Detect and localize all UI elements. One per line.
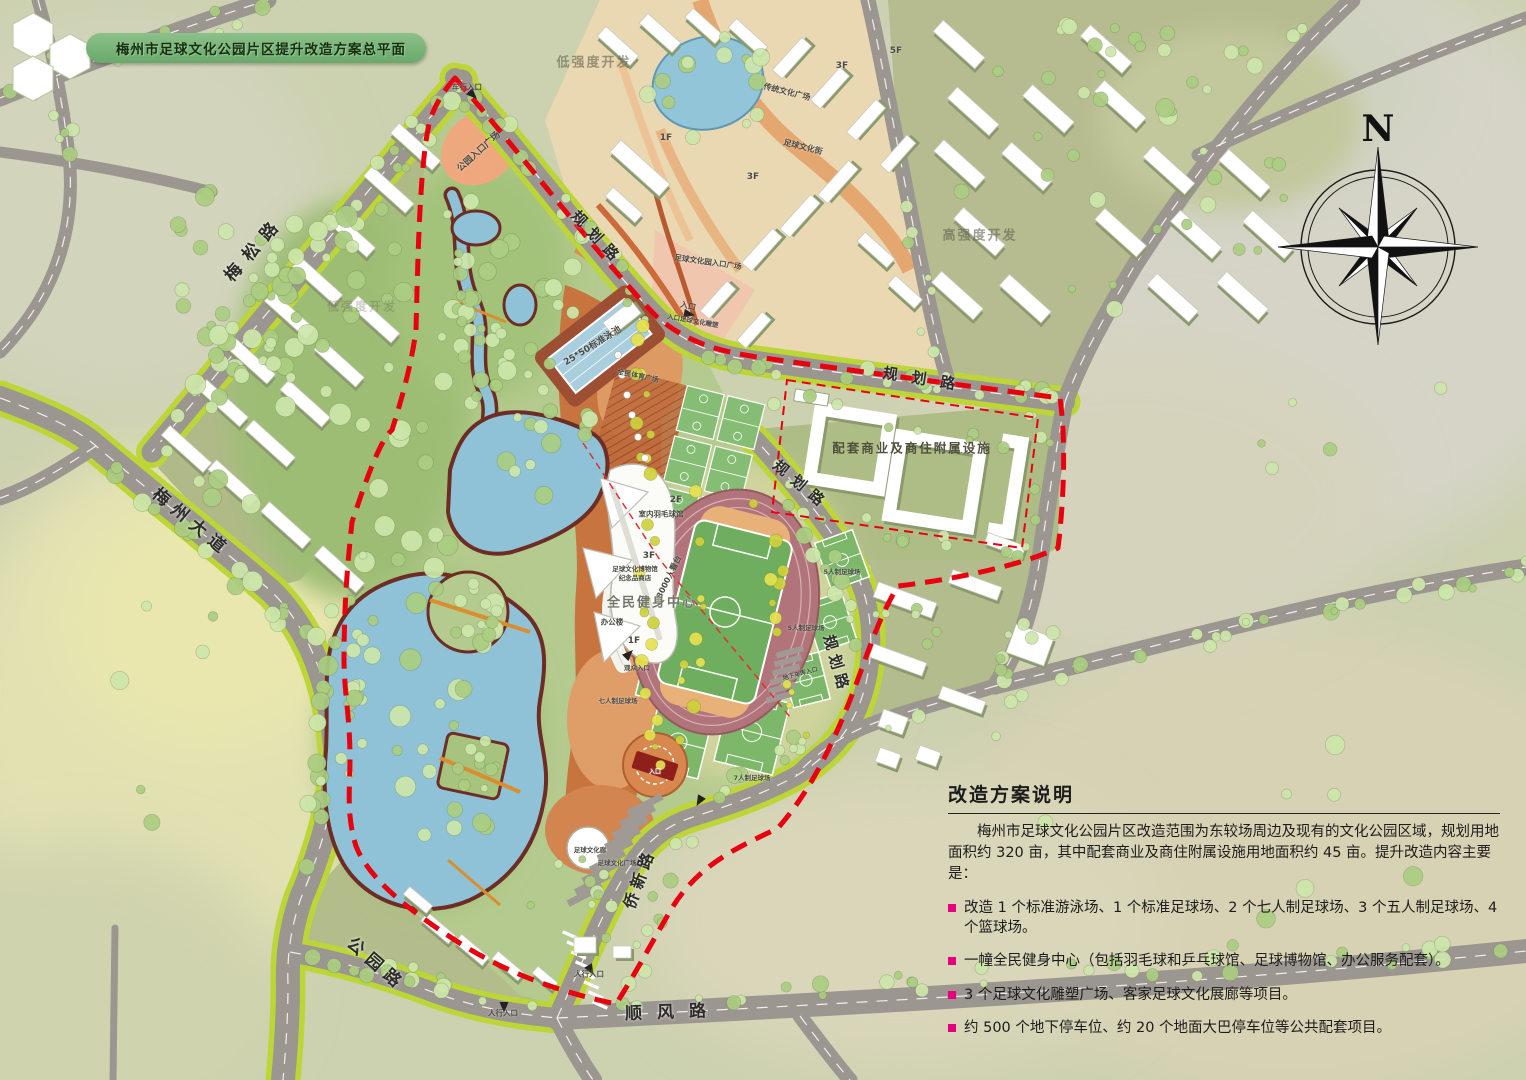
tree — [1078, 87, 1090, 99]
building — [613, 946, 634, 961]
tree — [400, 649, 422, 671]
tree — [749, 499, 758, 508]
tree — [322, 253, 331, 262]
tree — [434, 372, 452, 390]
tree — [1254, 246, 1262, 254]
site-label-27: 3F — [747, 172, 759, 182]
tree — [286, 373, 296, 383]
tree — [1203, 85, 1212, 94]
tree — [393, 163, 403, 173]
tree — [906, 227, 917, 238]
tree — [318, 655, 338, 675]
tree — [309, 221, 328, 240]
tree — [203, 488, 222, 507]
tree — [995, 664, 1007, 676]
site-label-7: 室内羽毛球馆 — [639, 509, 684, 520]
tree — [771, 370, 781, 380]
tree — [62, 147, 77, 162]
tree — [1335, 597, 1349, 611]
tree — [882, 609, 890, 617]
tree — [474, 752, 485, 763]
tree — [525, 459, 535, 469]
tree — [812, 976, 828, 992]
tree — [465, 743, 477, 755]
tree — [883, 534, 891, 542]
tree — [384, 362, 394, 372]
tree — [336, 206, 358, 228]
walk-dot — [624, 392, 631, 399]
tree — [1035, 431, 1047, 443]
tree — [1158, 44, 1171, 57]
tree — [480, 599, 491, 610]
tree — [1068, 150, 1080, 162]
tree — [631, 333, 644, 346]
tree — [914, 427, 922, 435]
tree — [678, 677, 685, 684]
tree — [1266, 462, 1279, 475]
tree — [846, 615, 854, 623]
tree — [171, 409, 185, 423]
tree — [974, 390, 984, 400]
tree — [567, 306, 579, 318]
logo-hexagons — [8, 6, 128, 126]
tree — [700, 603, 706, 609]
tree — [297, 324, 318, 345]
tree — [176, 299, 191, 314]
tree — [554, 860, 563, 869]
tree — [1088, 38, 1103, 53]
tree — [324, 604, 338, 618]
tree — [208, 348, 224, 364]
notes-heading: 改造方案说明 — [948, 780, 1500, 807]
tree — [701, 350, 715, 364]
tree — [925, 274, 932, 281]
tree — [208, 611, 218, 621]
site-label-18: 5人制足球场 — [823, 566, 860, 576]
tree — [992, 732, 1001, 741]
tree — [242, 571, 262, 591]
tree — [715, 354, 726, 365]
tree — [1207, 170, 1222, 185]
tree — [215, 306, 230, 321]
tree — [328, 636, 341, 649]
tree — [1200, 147, 1208, 155]
tree — [391, 553, 405, 567]
tree — [251, 283, 268, 300]
tree — [1055, 673, 1068, 686]
tree — [662, 96, 675, 109]
tree — [416, 421, 428, 433]
tree — [401, 530, 423, 552]
tree — [564, 258, 582, 276]
tree — [777, 565, 788, 576]
tree — [534, 420, 548, 434]
tree — [1134, 650, 1147, 663]
tree — [535, 486, 553, 504]
tree — [417, 744, 428, 755]
site-label-25: 3F — [836, 61, 848, 71]
tree — [1224, 45, 1239, 60]
tree — [267, 252, 278, 263]
tree — [1288, 398, 1296, 406]
tree — [553, 300, 564, 311]
tree — [458, 351, 471, 364]
tree — [477, 621, 485, 629]
tree — [1434, 382, 1447, 395]
notes-bullet: 一幢全民健身中心（包括羽毛球和乒乓球馆、足球博物馆、办公服务配套）。 — [948, 952, 1500, 972]
tree — [803, 732, 810, 739]
tree — [780, 755, 790, 765]
tree — [623, 298, 632, 307]
tree — [1238, 46, 1248, 56]
tree — [714, 792, 726, 804]
tree — [477, 324, 486, 333]
tree — [696, 658, 705, 667]
tree — [646, 638, 658, 650]
zone-label-low-intensity-1: 低强度开发 — [556, 52, 631, 71]
tree — [458, 779, 470, 791]
tree — [210, 6, 220, 16]
tree — [742, 119, 751, 128]
tree — [1106, 301, 1123, 318]
tree — [195, 187, 214, 206]
tree — [789, 689, 795, 695]
walk-dot — [642, 455, 649, 462]
tree — [329, 403, 351, 425]
tree — [335, 753, 347, 765]
tree — [695, 537, 704, 546]
tree — [402, 164, 410, 172]
tree — [1325, 735, 1345, 755]
tree — [347, 271, 366, 290]
tree — [915, 984, 928, 997]
tree — [1204, 639, 1217, 652]
tree — [1323, 442, 1337, 456]
tree — [370, 156, 384, 170]
tree — [392, 745, 402, 755]
tree — [1258, 440, 1266, 448]
tree — [453, 257, 462, 266]
tree — [647, 430, 655, 438]
tree — [443, 210, 452, 219]
tree — [1212, 632, 1221, 641]
tree — [474, 334, 486, 346]
tree — [449, 721, 459, 731]
site-label-17: 7人制足球场 — [733, 772, 770, 782]
tree — [1073, 657, 1088, 672]
tree — [1156, 98, 1175, 117]
tree — [584, 876, 596, 888]
tree — [644, 467, 657, 480]
site-label-1: 车行入口 — [452, 82, 482, 93]
tree — [544, 358, 556, 370]
tree — [111, 671, 129, 689]
tree — [1220, 630, 1231, 641]
tree — [772, 628, 781, 637]
walk-dot — [635, 434, 642, 441]
tree — [349, 965, 360, 976]
site-label-26: 1F — [660, 133, 672, 143]
tree — [454, 595, 467, 608]
tree — [588, 901, 596, 909]
tree — [496, 328, 507, 339]
tree — [1001, 547, 1012, 558]
notes-bullet-list: 改造 1 个标准游泳场、1 个标准足球场、2 个七人制足球场、3 个五人制足球场… — [948, 899, 1500, 1039]
site-label-11: 纪念品商店 — [619, 572, 652, 582]
tree — [538, 385, 549, 396]
tree — [903, 237, 915, 249]
tree — [1412, 578, 1426, 592]
tree — [769, 534, 783, 548]
tree — [647, 617, 659, 629]
tree — [545, 279, 563, 297]
tree — [1504, 567, 1514, 577]
tree — [142, 601, 152, 611]
site-label-30: 观众入口 — [624, 662, 650, 672]
tree — [434, 983, 450, 999]
tree — [357, 738, 367, 748]
tree — [752, 48, 770, 66]
tree — [1089, 192, 1105, 208]
tree — [452, 763, 464, 775]
tree — [1259, 614, 1269, 624]
tree — [424, 557, 445, 578]
tree — [524, 342, 537, 355]
tree — [1160, 26, 1175, 41]
tree — [663, 873, 678, 888]
tree — [644, 729, 656, 741]
tree — [767, 397, 780, 410]
tree — [1438, 584, 1454, 600]
tree — [1105, 46, 1116, 57]
tree — [719, 32, 730, 43]
tree — [543, 404, 558, 419]
site-label-24: 5F — [890, 46, 902, 56]
tree — [917, 328, 925, 336]
tree — [727, 359, 742, 374]
tree — [266, 337, 277, 348]
tree — [687, 700, 701, 714]
zone-label-high-intensity: 高强度开发 — [942, 225, 1017, 244]
tree — [513, 413, 522, 422]
tree — [1233, 243, 1245, 255]
tree — [490, 379, 503, 392]
tree — [369, 479, 388, 498]
tree — [327, 958, 341, 972]
tree — [1029, 484, 1040, 495]
tree — [716, 47, 732, 63]
masterplan-map: 梅州市足球文化公园片区提升改造方案总平面 N 梅松路 梅州大道 公园路 顺风路 … — [0, 0, 1526, 1080]
bullet-square-icon — [948, 904, 956, 912]
site-label-16: 七人制足球场 — [599, 695, 638, 705]
tree — [1396, 587, 1412, 603]
tree — [1354, 598, 1365, 609]
tree — [375, 203, 389, 217]
walk-dot — [629, 412, 636, 419]
site-label-23: 人行入口 — [574, 969, 604, 980]
tree — [478, 997, 486, 1005]
tree — [885, 725, 891, 731]
tree — [803, 389, 817, 403]
tree — [599, 869, 609, 879]
tree — [1247, 57, 1264, 74]
tree — [912, 709, 926, 723]
tree — [1016, 689, 1028, 701]
tree — [308, 754, 326, 772]
tree — [346, 690, 362, 706]
notes-bullet: 3 个足球文化雕塑广场、客家足球文化展廊等项目。 — [948, 986, 1500, 1006]
tree — [291, 312, 302, 323]
tree — [304, 949, 320, 965]
tree — [872, 611, 879, 618]
tree — [422, 764, 436, 778]
tree — [640, 688, 651, 699]
tree — [578, 428, 592, 442]
tree — [894, 971, 902, 979]
tree — [374, 516, 395, 537]
tree — [862, 513, 872, 523]
notes-bullet: 改造 1 个标准游泳场、1 个标准足球场、2 个七人制足球场、3 个五人制足球场… — [948, 899, 1500, 938]
tree — [275, 396, 295, 416]
tree — [438, 333, 446, 341]
tree — [655, 73, 671, 89]
tree — [1200, 197, 1216, 213]
tree — [636, 319, 649, 332]
tree — [509, 465, 521, 477]
tree — [234, 368, 249, 383]
tree — [561, 194, 570, 203]
tree — [472, 813, 491, 832]
tree — [805, 547, 821, 563]
zone-label-commercial: 配套商业及商住附属设施 — [832, 438, 992, 457]
tree — [996, 654, 1005, 663]
tree — [1191, 629, 1202, 640]
tree — [1068, 285, 1075, 292]
tree — [481, 785, 488, 792]
tree — [633, 941, 641, 949]
tree — [144, 814, 160, 830]
tree — [727, 996, 741, 1010]
notes-panel: 改造方案说明 梅州市足球文化公园片区改造范围为东较场周边及现有的文化公园区域，规… — [948, 780, 1500, 1039]
tree — [1469, 585, 1477, 593]
tree — [205, 401, 217, 413]
tree — [642, 925, 654, 937]
tree — [750, 108, 764, 122]
tree — [265, 606, 281, 622]
notes-rule — [948, 813, 1500, 814]
tree — [357, 634, 369, 646]
tree — [320, 386, 332, 398]
compass-rose: N — [1273, 97, 1483, 357]
tree — [503, 348, 515, 360]
tree — [446, 820, 461, 835]
tree — [1046, 439, 1054, 447]
tree — [922, 639, 933, 650]
tree — [1135, 41, 1146, 52]
tree — [266, 356, 281, 371]
tree — [170, 217, 186, 233]
tree — [454, 249, 463, 258]
tree — [300, 795, 317, 812]
tree — [1187, 76, 1199, 88]
tree — [1110, 23, 1119, 32]
tree — [781, 982, 791, 992]
tree — [828, 550, 842, 564]
tree — [418, 455, 434, 471]
tree — [907, 977, 917, 987]
tree — [368, 615, 378, 625]
tree — [346, 643, 361, 658]
tree — [459, 101, 470, 112]
building — [574, 937, 599, 956]
tree — [196, 645, 210, 659]
tree — [1297, 23, 1307, 33]
tree — [845, 600, 857, 612]
site-label-13: 全民健身中心 — [607, 592, 697, 611]
tree — [243, 329, 262, 348]
tree — [193, 476, 204, 487]
zone-label-low-intensity-2: 低强度开发 — [327, 298, 397, 315]
tree — [648, 891, 658, 901]
tree — [485, 763, 498, 776]
tree — [299, 859, 315, 875]
tree — [676, 736, 685, 745]
tree — [840, 372, 853, 385]
notes-paragraph: 梅州市足球文化公园片区改造范围为东较场周边及现有的文化公园区域，规划用地面积约 … — [948, 822, 1500, 885]
site-label-20: 足球文化廊 — [574, 844, 607, 854]
tree — [1098, 70, 1105, 77]
tree — [796, 527, 813, 544]
plan-title-badge: 梅州市足球文化公园片区提升改造方案总平面 — [86, 33, 426, 63]
tree — [932, 627, 942, 637]
bullet-square-icon — [948, 1024, 956, 1032]
tree — [405, 115, 418, 128]
tree — [249, 273, 259, 283]
tree — [686, 836, 698, 848]
tree — [786, 702, 793, 709]
plan-title: 梅州市足球文化公园片区提升改造方案总平面 — [116, 38, 406, 58]
tree — [254, 0, 270, 15]
bullet-square-icon — [948, 957, 956, 965]
tree — [468, 578, 479, 589]
tree — [316, 338, 330, 352]
tree — [689, 632, 702, 645]
tree — [456, 290, 466, 300]
tree — [1034, 132, 1042, 140]
tree — [993, 66, 1004, 77]
tree — [764, 573, 777, 586]
tree — [463, 194, 479, 210]
tree — [389, 145, 399, 155]
tree — [1005, 631, 1012, 638]
tree — [1018, 618, 1030, 630]
tree — [1041, 168, 1054, 181]
tree — [524, 370, 533, 379]
tree — [408, 962, 418, 972]
site-label-32: 入口 — [649, 767, 661, 776]
tree — [455, 680, 472, 697]
tree — [997, 442, 1009, 454]
tree — [428, 581, 443, 596]
tree — [464, 324, 477, 337]
tree — [1046, 626, 1060, 640]
tree — [880, 975, 895, 990]
tree — [175, 283, 189, 297]
notes-bullet: 约 500 个地下停车位、约 20 个地面大巴停车位等公共配套项目。 — [948, 1019, 1500, 1039]
compass-north-label: N — [1362, 108, 1395, 150]
tree — [1042, 71, 1056, 85]
tree — [1109, 281, 1117, 289]
